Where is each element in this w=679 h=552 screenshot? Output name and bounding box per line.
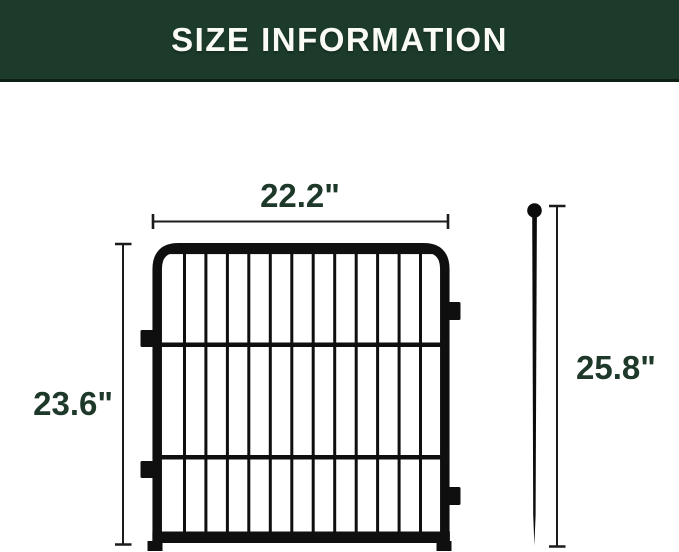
fence-clip-right-upper bbox=[447, 302, 461, 320]
stake-dimension-line bbox=[549, 206, 566, 547]
fence-bar bbox=[204, 253, 207, 534]
fence-bar bbox=[376, 253, 379, 534]
height-dimension-line bbox=[115, 244, 132, 545]
fence-clip-right-lower bbox=[447, 487, 461, 505]
fence-bar bbox=[247, 253, 250, 534]
fence-vertical-bars bbox=[183, 253, 422, 534]
fence-panel bbox=[141, 248, 461, 551]
panel-height-label: 23.6" bbox=[13, 387, 113, 420]
fence-foot-right bbox=[437, 541, 452, 551]
fence-bar bbox=[419, 253, 422, 534]
size-information-infographic: SIZE INFORMATION bbox=[0, 0, 679, 552]
fence-bar bbox=[183, 253, 186, 534]
fence-rail-bottom bbox=[152, 532, 450, 544]
fence-clip-left-upper bbox=[141, 330, 154, 347]
width-dimension-line bbox=[153, 214, 448, 229]
fence-clip-left-lower bbox=[141, 461, 154, 478]
fence-frame bbox=[157, 248, 445, 548]
stake-rod bbox=[532, 214, 537, 546]
stake-height-label: 25.8" bbox=[576, 351, 656, 384]
ground-stake bbox=[527, 203, 542, 545]
fence-bar bbox=[398, 253, 401, 534]
fence-bar bbox=[312, 253, 315, 534]
fence-bar bbox=[226, 253, 229, 534]
panel-width-label: 22.2" bbox=[230, 179, 370, 212]
fence-bar bbox=[333, 253, 336, 534]
fence-bar bbox=[355, 253, 358, 534]
fence-bar bbox=[269, 253, 272, 534]
fence-diagram bbox=[0, 0, 679, 552]
fence-foot-left bbox=[148, 541, 163, 551]
fence-bar bbox=[290, 253, 293, 534]
dimension-lines bbox=[115, 206, 566, 547]
